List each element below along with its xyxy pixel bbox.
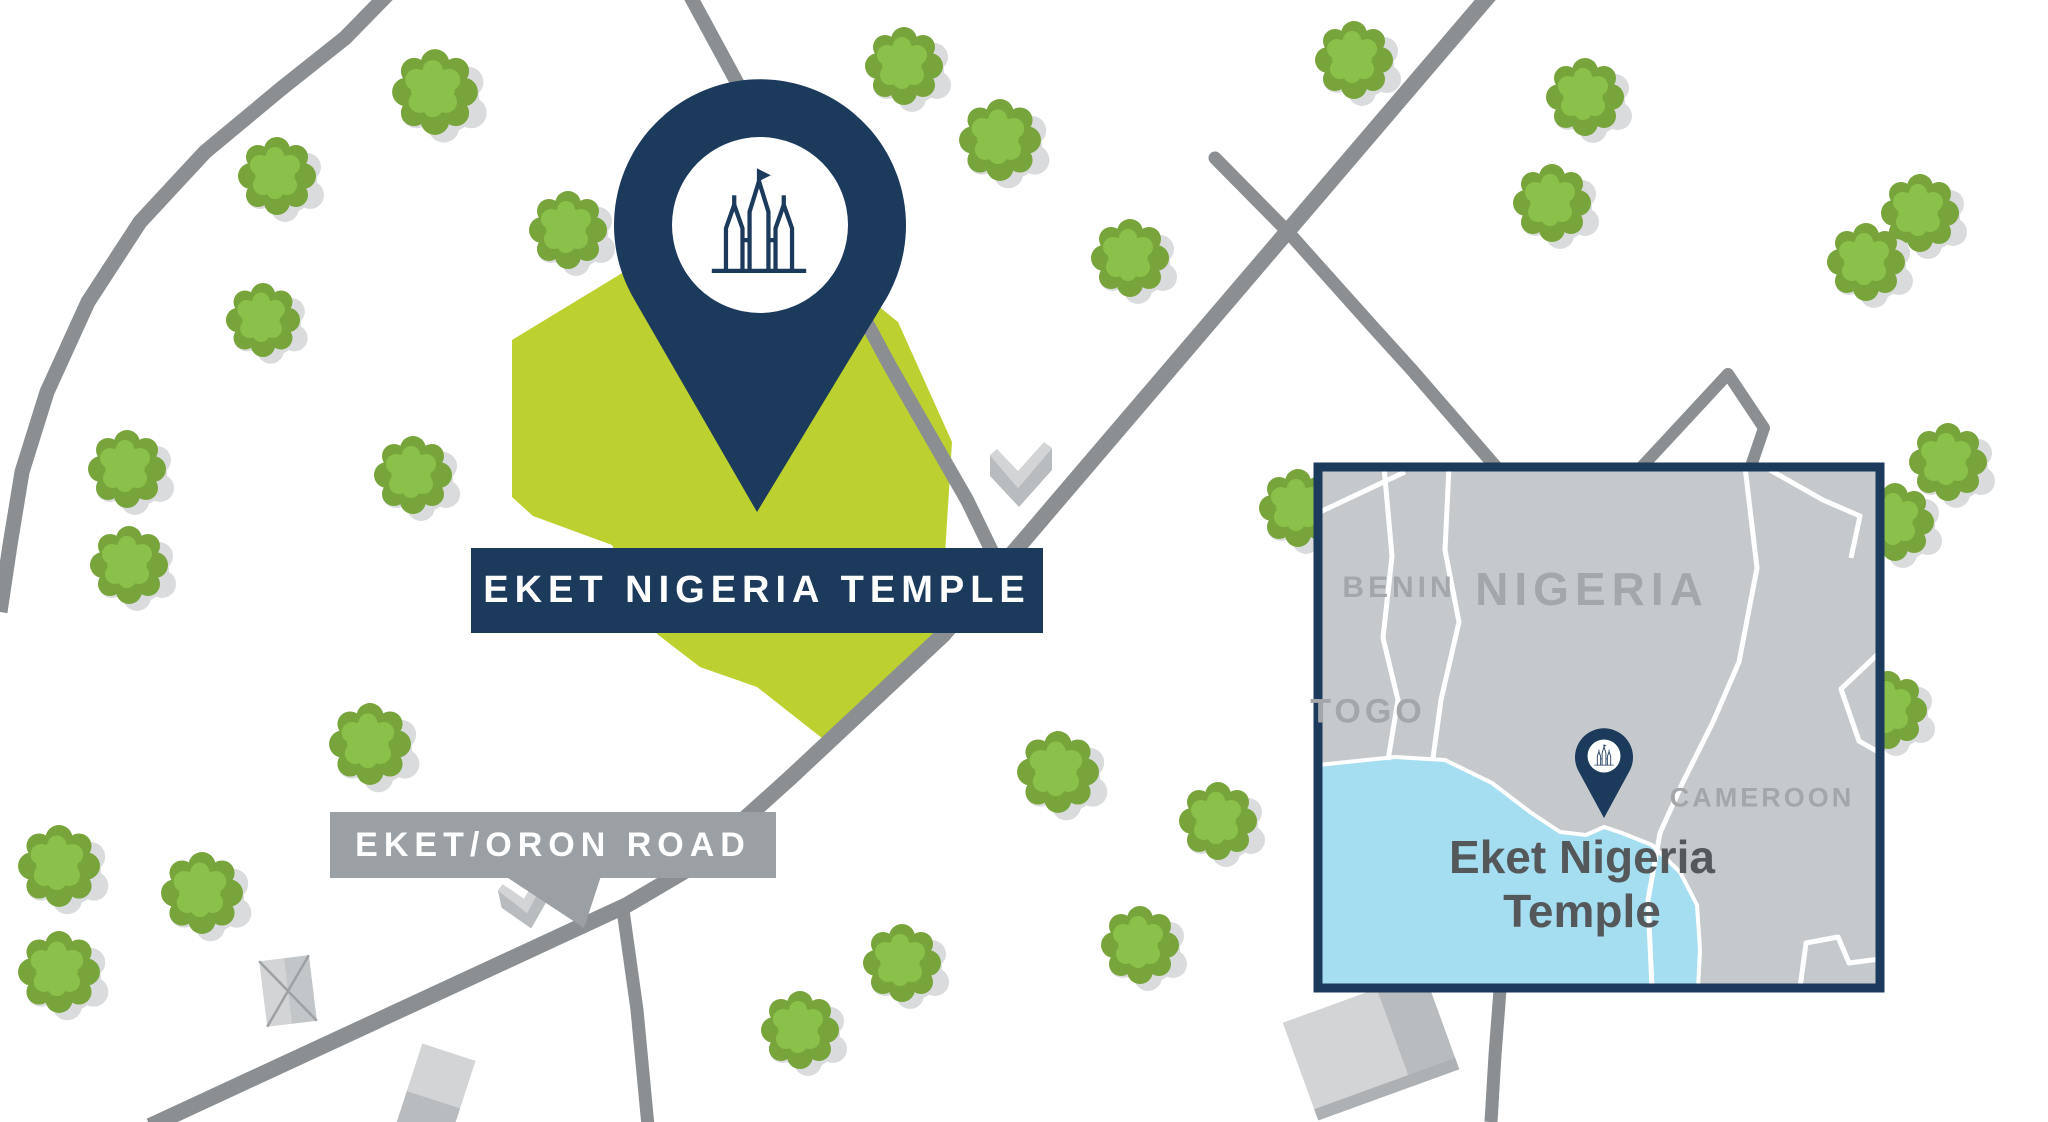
pin-inner-circle [672,137,848,313]
building-large [1283,971,1460,1120]
building-rect [393,1044,476,1122]
tree-icon [374,436,460,521]
tree-icon [959,99,1049,188]
tree-icon [529,191,615,276]
tree-icon [329,703,419,792]
road-banner-label: EKET/ORON ROAD [355,826,751,865]
road-zigzag-above-inset [1637,374,1764,472]
tree-icon [1179,782,1265,867]
inset-caption-line1: Eket Nigeria [1449,830,1715,884]
tree-icon [238,137,324,222]
inset-label-cameroon: CAMEROON [1670,783,1855,814]
tree-icon [18,825,108,914]
tree-icon [1546,58,1632,143]
inset-label-nigeria: NIGERIA [1475,562,1709,616]
tree-icon [392,49,487,143]
tree-icon [1017,731,1107,820]
building-chevron [990,442,1052,507]
tree-icon [18,931,108,1020]
site-banner-label: EKET NIGERIA TEMPLE [483,569,1031,612]
building-house [259,955,317,1027]
inset-label-benin: BENIN [1342,571,1455,605]
tree-icon [1315,21,1401,106]
road-banner: EKET/ORON ROAD [330,812,776,878]
tree-icon [1101,906,1187,991]
road-steep-branch [622,903,648,1122]
tree-icon [865,27,951,112]
pin-inner-circle [1588,740,1621,773]
road-below-inset [1491,990,1500,1122]
tree-icon [1091,219,1177,304]
road-left-curve [0,0,390,612]
tree-icon [226,283,308,364]
inset-caption: Eket Nigeria Temple [1449,830,1715,938]
inset-label-togo: TOGO [1310,693,1426,732]
map-illustration: EKET NIGERIA TEMPLE EKET/ORON ROAD BENIN… [0,0,2048,1122]
inset-caption-line2: Temple [1449,884,1715,938]
tree-icon [90,526,176,611]
tree-icon [1513,164,1599,249]
tree-icon [88,430,174,515]
site-banner: EKET NIGERIA TEMPLE [471,548,1043,633]
tree-icon [761,991,847,1076]
tree-icon [161,852,251,941]
tree-icon [863,924,949,1009]
road-crossing [1215,158,1496,467]
